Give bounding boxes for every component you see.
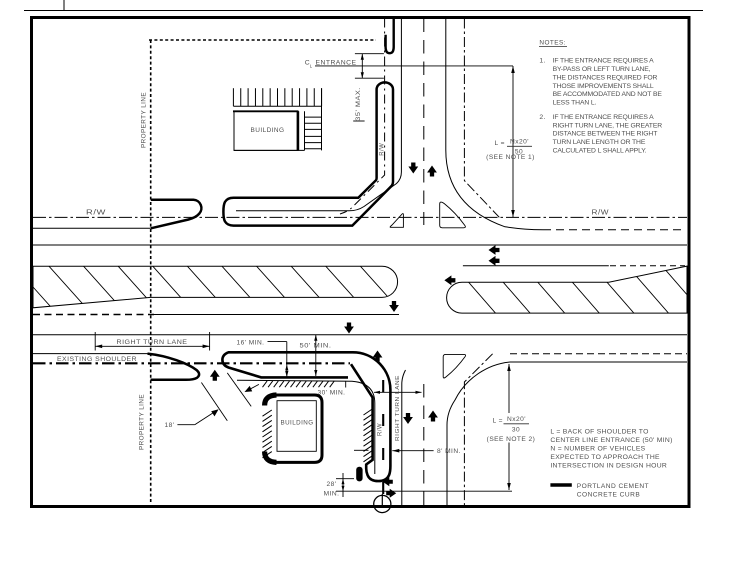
svg-text:PROPERTY LINE: PROPERTY LINE [141, 92, 148, 148]
svg-text:30: 30 [512, 426, 520, 433]
svg-text:EXISTING SHOULDER: EXISTING SHOULDER [57, 356, 137, 363]
svg-text:INTERSECTION IN DESIGN HOUR: INTERSECTION IN DESIGN HOUR [550, 462, 667, 469]
svg-text:R/W: R/W [377, 423, 384, 436]
svg-text:PROPERTY LINE: PROPERTY LINE [139, 394, 146, 450]
svg-text:(SEE NOTE 2): (SEE NOTE 2) [487, 436, 536, 443]
svg-text:2.: 2. [539, 114, 546, 121]
svg-text:N = NUMBER OF VEHICLES: N = NUMBER OF VEHICLES [550, 445, 645, 452]
svg-text:1.: 1. [539, 58, 546, 65]
svg-text:EXPECTED TO APPROACH THE: EXPECTED TO APPROACH THE [550, 454, 660, 461]
svg-text:L: L [310, 63, 313, 68]
svg-text:BUILDING: BUILDING [251, 127, 285, 134]
svg-text:IF THE ENTRANCE REQUIRES A: IF THE ENTRANCE REQUIRES A [553, 114, 655, 121]
svg-text:CALCULATED L SHALL APPLY.: CALCULATED L SHALL APPLY. [553, 148, 647, 155]
svg-text:LESS THAN L.: LESS THAN L. [553, 100, 597, 107]
svg-text:PORTLAND CEMENT: PORTLAND CEMENT [577, 483, 649, 490]
svg-text:THOSE IMPROVEMENTS SHALL: THOSE IMPROVEMENTS SHALL [553, 83, 654, 90]
svg-text:R/W: R/W [86, 208, 106, 217]
svg-text:BY-PASS OR LEFT TURN LANE,: BY-PASS OR LEFT TURN LANE, [553, 66, 651, 73]
svg-text:RIGHT TURN LANE, THE GREATER: RIGHT TURN LANE, THE GREATER [553, 122, 663, 129]
svg-text:BE ACCOMMODATED AND NOT BE: BE ACCOMMODATED AND NOT BE [553, 91, 663, 98]
svg-text:18': 18' [165, 422, 175, 429]
svg-text:Nx20': Nx20' [510, 138, 529, 145]
svg-text:CENTER LINE ENTRANCE (50' MIN): CENTER LINE ENTRANCE (50' MIN) [550, 437, 672, 444]
svg-text:28': 28' [327, 481, 337, 488]
svg-text:L =: L = [495, 140, 505, 147]
svg-text:NOTES:: NOTES: [539, 40, 566, 47]
svg-text:35' MAX.: 35' MAX. [355, 87, 362, 121]
svg-text:(SEE NOTE 1): (SEE NOTE 1) [486, 154, 535, 161]
svg-text:RIGHT TURN LANE: RIGHT TURN LANE [395, 375, 401, 441]
svg-text:8' MIN.: 8' MIN. [437, 448, 461, 455]
svg-text:R/W: R/W [592, 208, 610, 217]
svg-text:RIGHT TURN LANE: RIGHT TURN LANE [117, 339, 188, 346]
svg-text:16' MIN.: 16' MIN. [237, 339, 265, 346]
svg-text:R/W: R/W [379, 143, 386, 156]
svg-text:L =: L = [493, 417, 503, 424]
svg-text:THE DISTANCES REQUIRED FOR: THE DISTANCES REQUIRED FOR [553, 74, 658, 81]
svg-text:CONCRETE CURB: CONCRETE CURB [577, 491, 641, 498]
svg-text:IF THE ENTRANCE REQUIRES A: IF THE ENTRANCE REQUIRES A [553, 58, 655, 65]
svg-text:TURN LANE LENGTH OR THE: TURN LANE LENGTH OR THE [553, 139, 646, 146]
svg-text:L = BACK OF SHOULDER TO: L = BACK OF SHOULDER TO [550, 429, 648, 436]
svg-text:Nx20': Nx20' [507, 416, 526, 423]
svg-text:30' MIN.: 30' MIN. [318, 389, 346, 396]
svg-text:DISTANCE BETWEEN THE RIGHT: DISTANCE BETWEEN THE RIGHT [553, 131, 658, 138]
svg-text:BUILDING: BUILDING [281, 420, 314, 427]
svg-text:ENTRANCE: ENTRANCE [316, 60, 357, 67]
